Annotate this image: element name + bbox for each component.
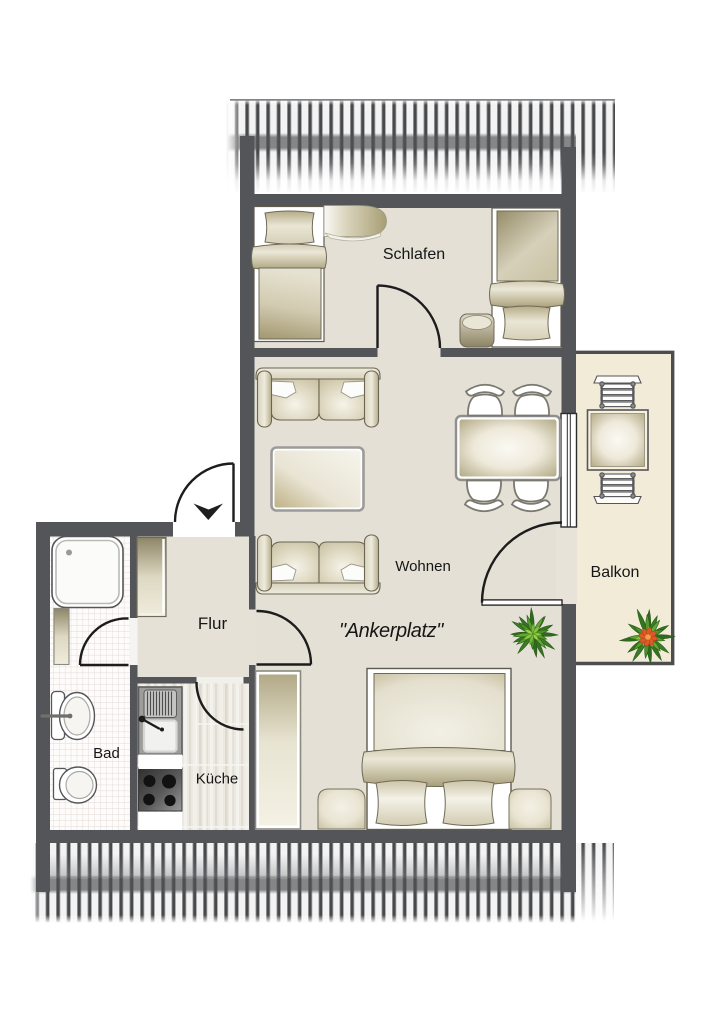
svg-text:Schlafen: Schlafen (383, 246, 445, 263)
svg-text:Wohnen: Wohnen (395, 558, 451, 575)
svg-text:Flur: Flur (198, 614, 228, 633)
svg-text:Balkon: Balkon (591, 564, 640, 581)
svg-text:Küche: Küche (196, 771, 239, 788)
svg-text:Bad: Bad (93, 745, 120, 762)
svg-text:"Ankerplatz": "Ankerplatz" (339, 620, 444, 642)
